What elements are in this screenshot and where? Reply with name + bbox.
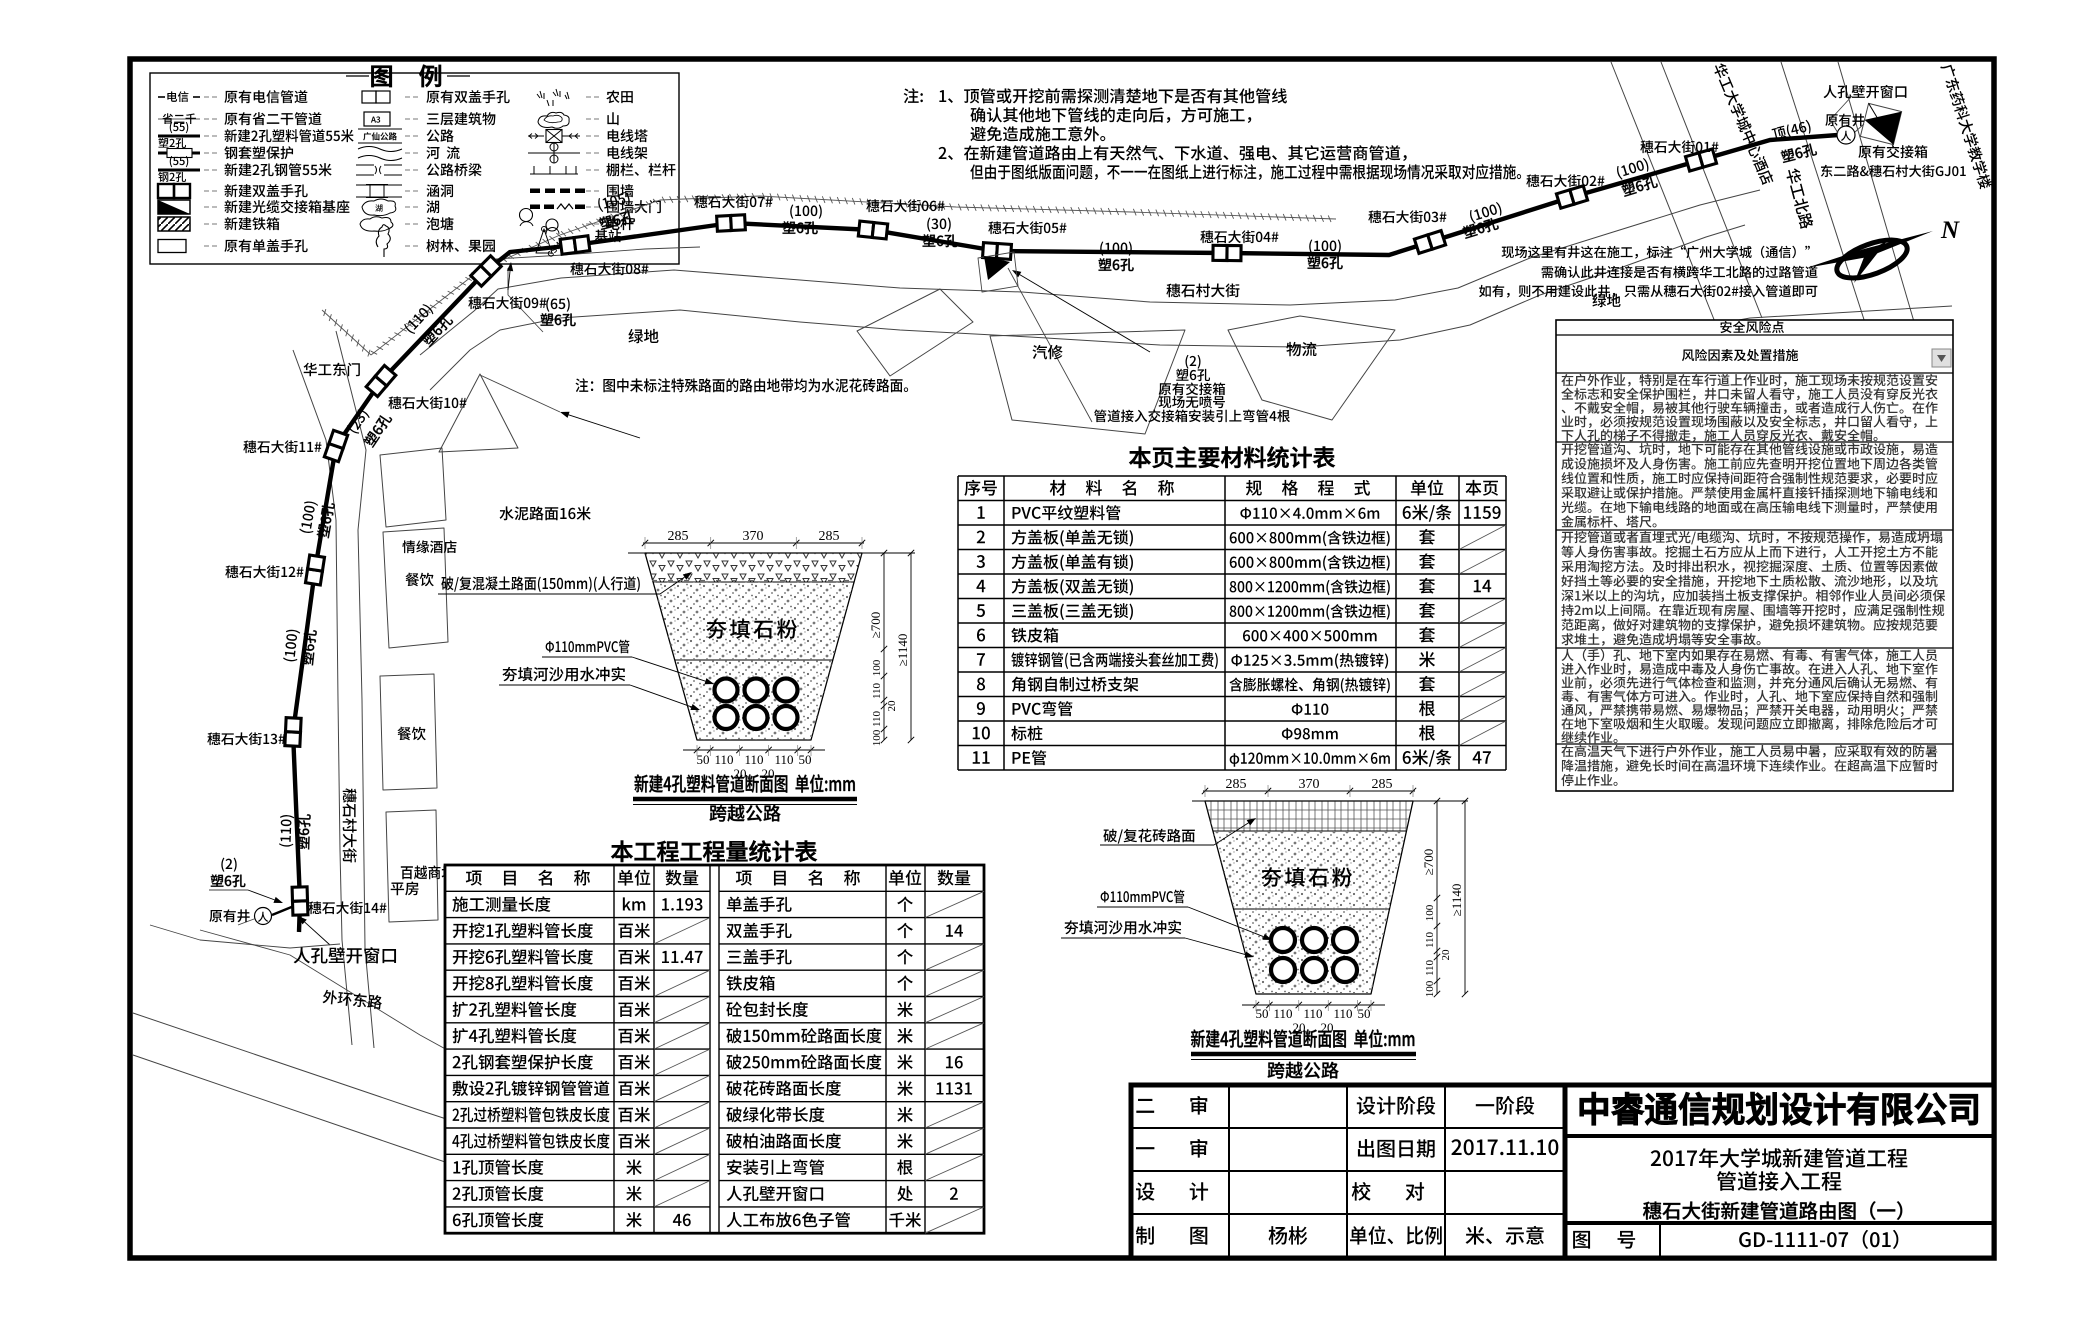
svg-text:110: 110 (714, 752, 733, 767)
svg-text:50: 50 (1256, 1006, 1269, 1021)
svg-text:20: 20 (1440, 949, 1452, 961)
svg-text:285: 285 (1372, 777, 1393, 792)
svg-text:370: 370 (743, 529, 764, 544)
svg-text:285: 285 (1226, 777, 1247, 792)
svg-text:110: 110 (1424, 959, 1436, 976)
svg-text:20: 20 (734, 766, 747, 781)
svg-text:110: 110 (1303, 1006, 1322, 1021)
svg-text:20: 20 (762, 766, 775, 781)
svg-text:100: 100 (871, 729, 883, 746)
svg-text:100: 100 (1424, 904, 1436, 921)
svg-text:≥700: ≥700 (868, 612, 883, 639)
svg-text:50: 50 (1358, 1006, 1371, 1021)
svg-text:110: 110 (871, 710, 883, 727)
svg-text:≥1140: ≥1140 (1449, 884, 1464, 917)
svg-text:110: 110 (1424, 931, 1436, 948)
svg-text:110: 110 (1333, 1006, 1352, 1021)
svg-text:285: 285 (668, 529, 689, 544)
svg-text:110: 110 (744, 752, 763, 767)
svg-text:100: 100 (1424, 980, 1436, 997)
svg-text:20: 20 (1321, 1020, 1334, 1035)
svg-text:370: 370 (1299, 777, 1320, 792)
svg-text:50: 50 (697, 752, 710, 767)
svg-text:110: 110 (1273, 1006, 1292, 1021)
svg-text:≥1140: ≥1140 (895, 634, 910, 667)
svg-text:50: 50 (799, 752, 812, 767)
svg-text:285: 285 (819, 529, 840, 544)
svg-text:20: 20 (886, 700, 898, 712)
svg-text:100: 100 (871, 659, 883, 676)
svg-text:N: N (1940, 217, 1960, 244)
svg-text:110: 110 (871, 682, 883, 699)
svg-text:110: 110 (774, 752, 793, 767)
svg-text:≥700: ≥700 (1421, 849, 1436, 876)
